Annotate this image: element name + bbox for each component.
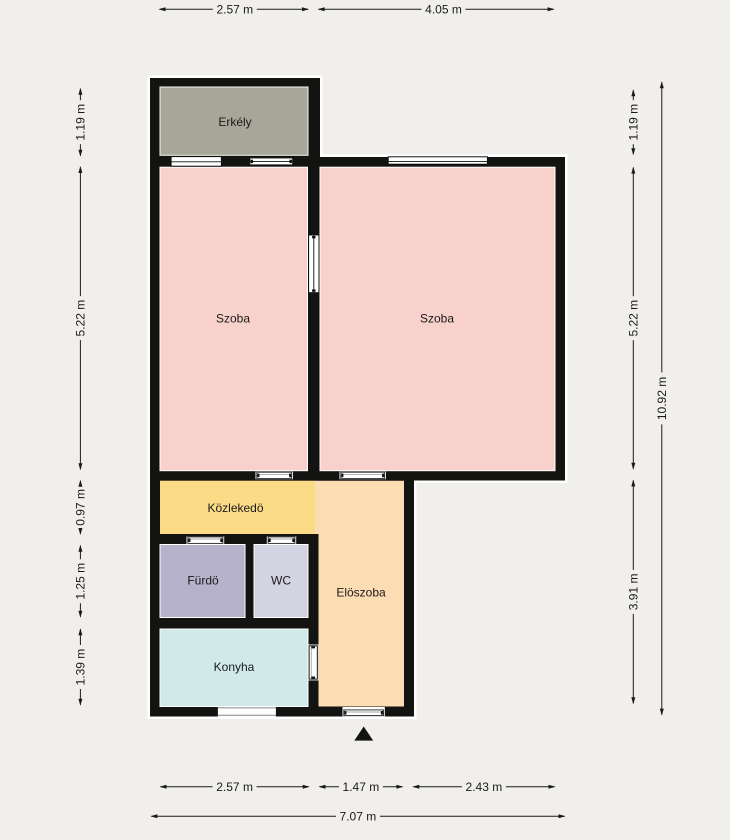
svg-text:Konyha: Konyha — [214, 660, 255, 674]
svg-text:2.57 m: 2.57 m — [216, 2, 253, 16]
svg-text:4.05 m: 4.05 m — [425, 2, 462, 16]
svg-text:5.22 m: 5.22 m — [627, 300, 641, 337]
svg-text:Szoba: Szoba — [216, 312, 250, 326]
svg-text:0.97 m: 0.97 m — [74, 489, 88, 526]
svg-text:1.19 m: 1.19 m — [74, 104, 88, 141]
svg-text:Elöszoba: Elöszoba — [336, 586, 386, 600]
svg-text:5.22 m: 5.22 m — [74, 300, 88, 337]
svg-text:3.91 m: 3.91 m — [627, 574, 641, 611]
svg-text:Erkély: Erkély — [218, 115, 251, 129]
svg-text:Szoba: Szoba — [420, 312, 454, 326]
svg-text:Fürdö: Fürdö — [187, 574, 219, 588]
svg-text:10.92 m: 10.92 m — [655, 377, 669, 420]
svg-text:1.47 m: 1.47 m — [343, 780, 380, 794]
svg-text:1.19 m: 1.19 m — [627, 104, 641, 141]
svg-text:2.57 m: 2.57 m — [216, 780, 253, 794]
svg-text:Közlekedö: Közlekedö — [207, 501, 263, 515]
svg-text:2.43 m: 2.43 m — [466, 780, 503, 794]
svg-text:1.39 m: 1.39 m — [74, 649, 88, 686]
svg-text:WC: WC — [271, 574, 291, 588]
svg-text:1.25 m: 1.25 m — [74, 563, 88, 600]
svg-text:7.07 m: 7.07 m — [340, 809, 377, 823]
